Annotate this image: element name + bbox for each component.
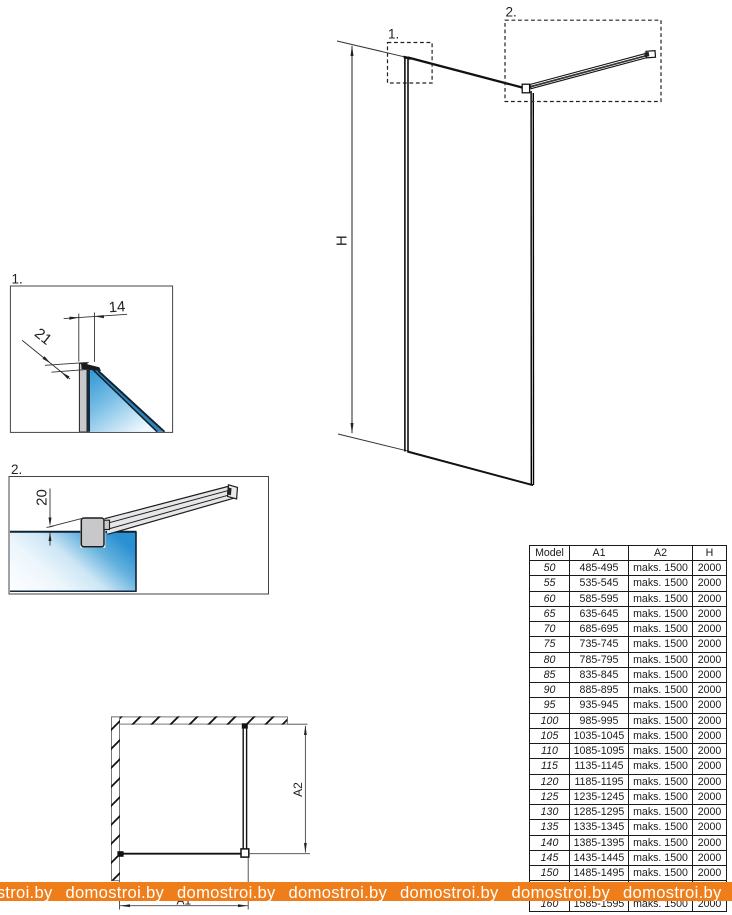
svg-text:A2: A2 [291, 782, 305, 797]
svg-text:20: 20 [34, 489, 51, 506]
svg-text:H: H [334, 235, 351, 246]
svg-text:1.: 1. [12, 272, 23, 287]
svg-text:14: 14 [108, 298, 126, 316]
svg-text:2.: 2. [506, 5, 517, 20]
svg-text:1.: 1. [388, 27, 399, 42]
svg-text:2.: 2. [11, 462, 22, 477]
